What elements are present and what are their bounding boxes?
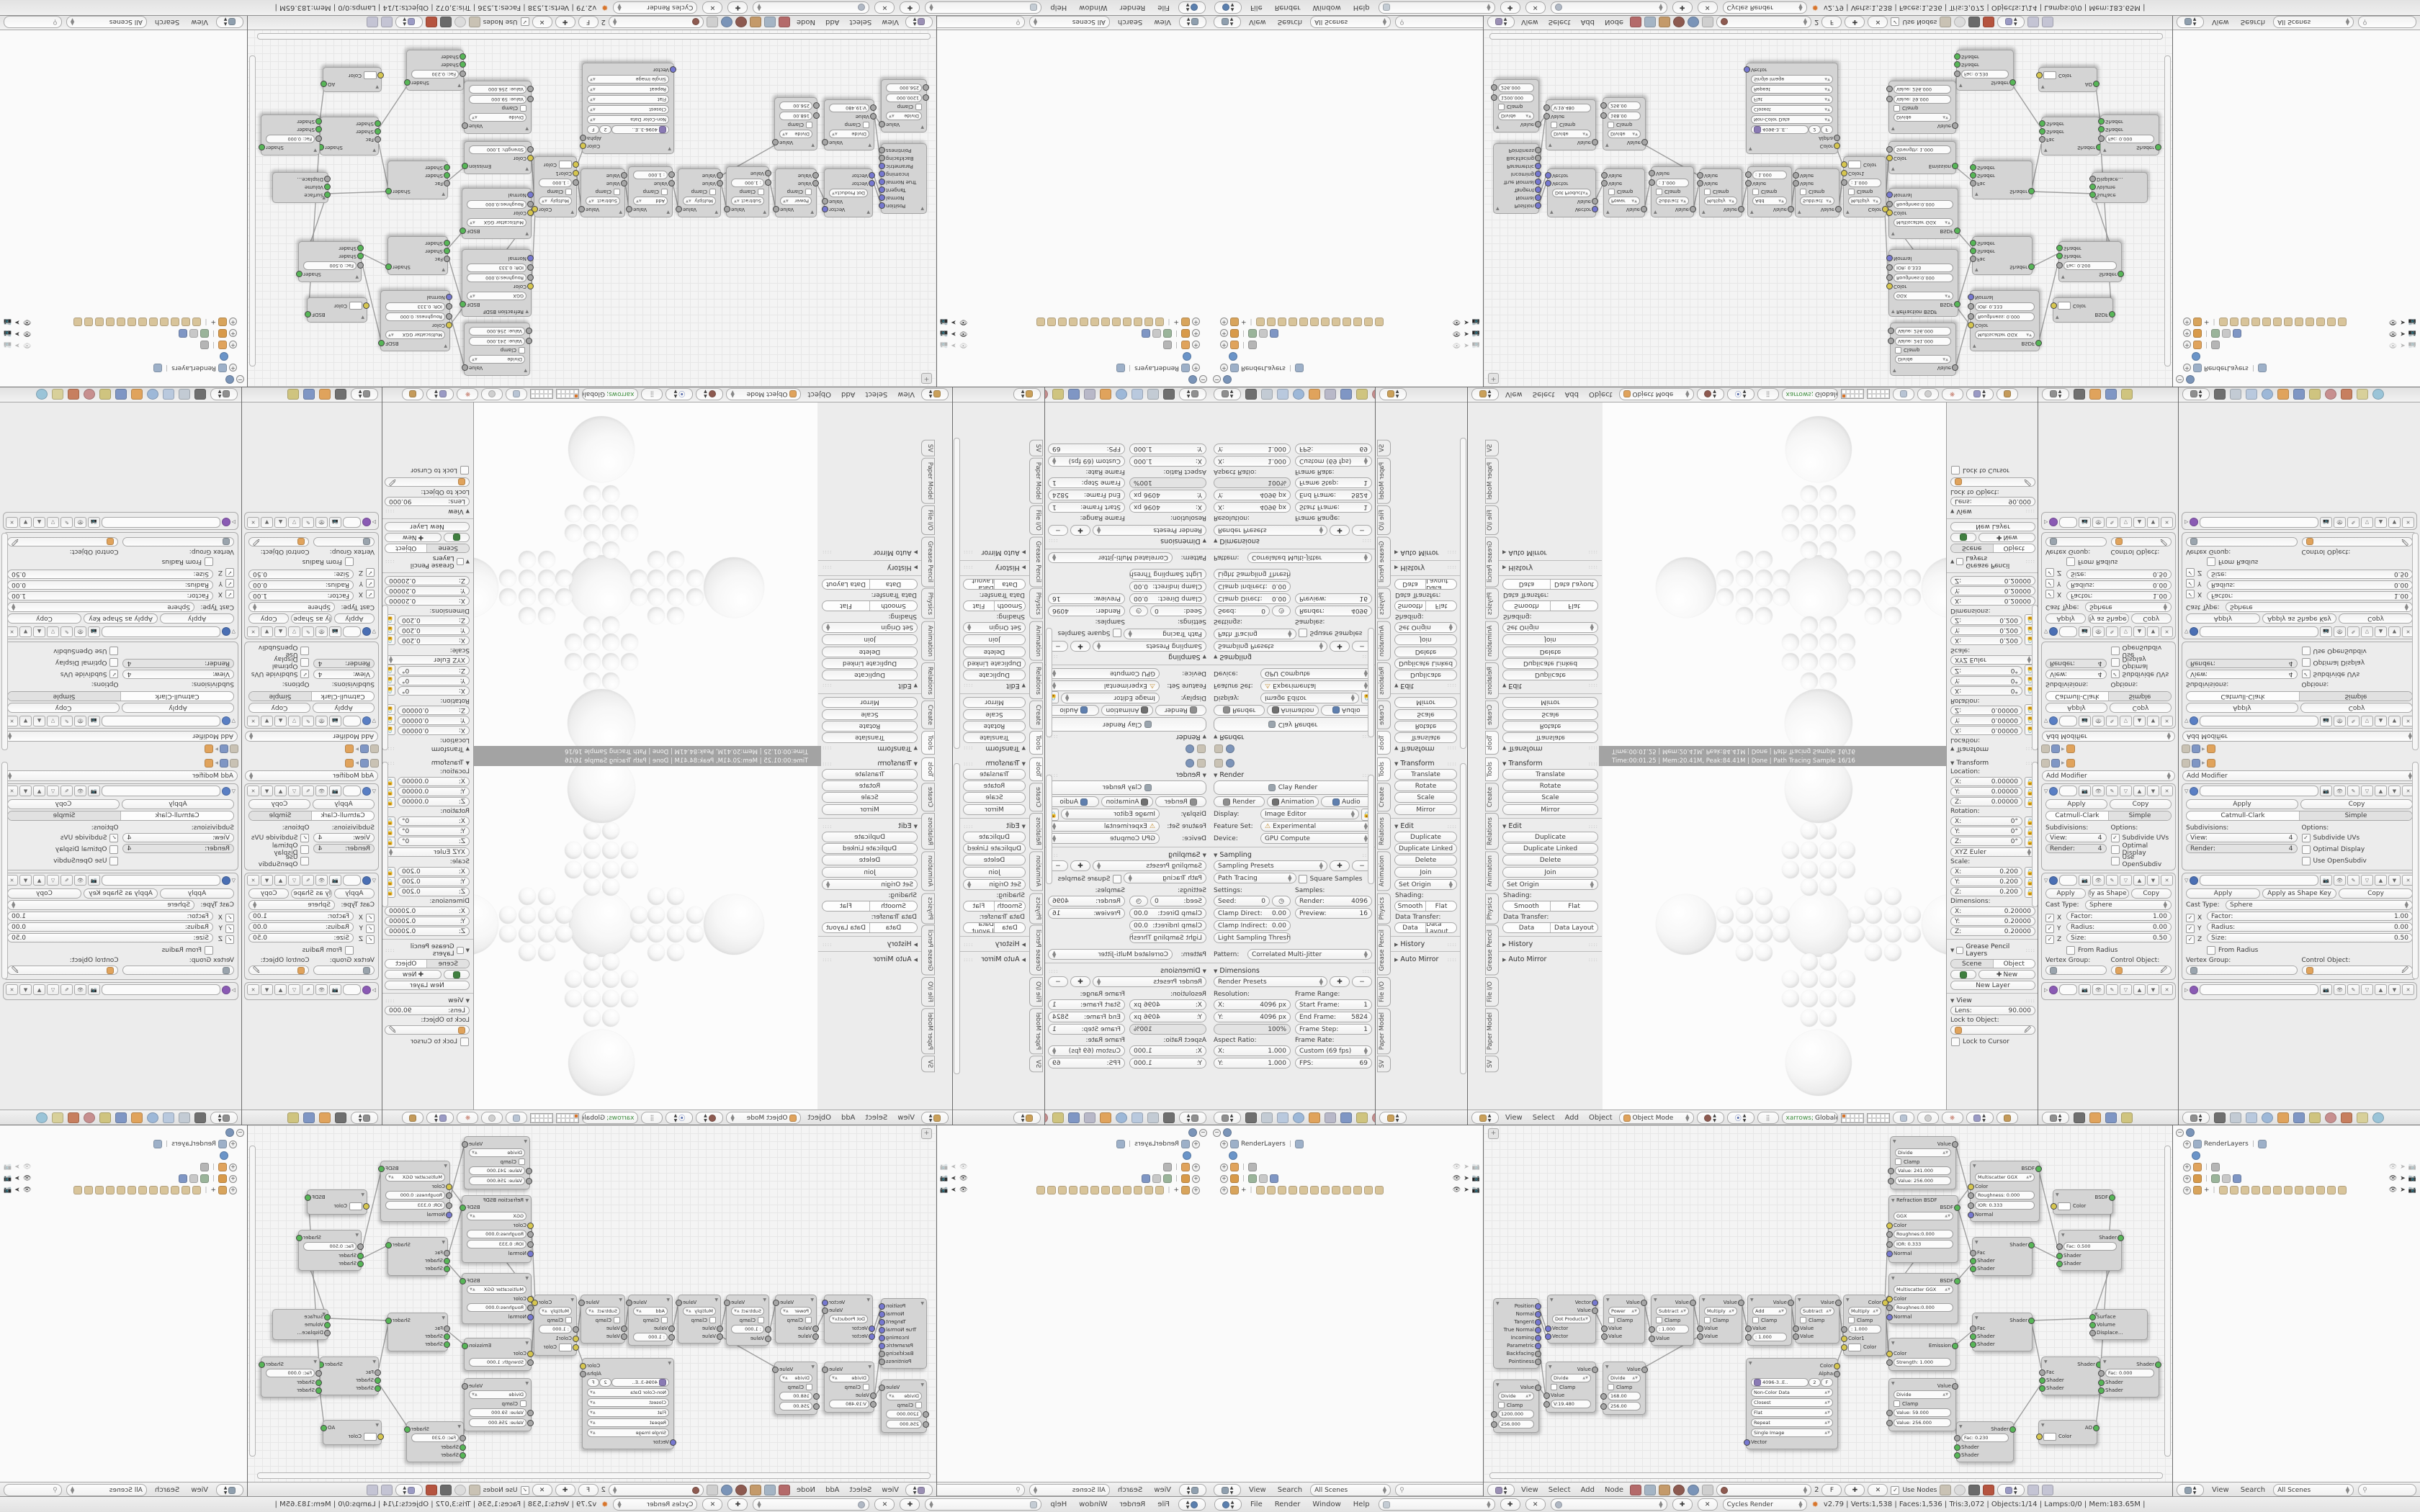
outliner-row-mesh[interactable]: +|👁➤📷 xyxy=(2183,339,2419,351)
toolshelf-tab-file-i-o[interactable]: File I/O xyxy=(1377,977,1391,1007)
subsurf-view-field[interactable]: View:4 xyxy=(123,670,235,679)
move-up-button[interactable]: ▲ xyxy=(33,517,45,528)
tab-modifiers-icon[interactable] xyxy=(1340,1112,1352,1123)
dim-x-field[interactable]: X:0.20000 xyxy=(1950,596,2035,606)
factor-field[interactable]: Factor:1.00 xyxy=(7,912,213,921)
gp-new-button[interactable]: ✚New xyxy=(385,533,442,542)
delete-modifier-button[interactable]: ✕ xyxy=(2161,875,2173,886)
proportional-edit-toggle[interactable] xyxy=(1917,1112,1939,1124)
toolshelf-tab-grease-pencil[interactable]: Grease Pencil xyxy=(1377,925,1391,976)
render-camera-icon[interactable]: 📷 xyxy=(1472,1175,1480,1182)
node-mix-shader-05[interactable]: ▼ShaderFac: 0.500ShaderShader xyxy=(298,241,362,282)
outliner-row-armature[interactable]: ++|👁➤📷 xyxy=(938,316,1200,328)
start-frame-field[interactable]: Start Frame:1 xyxy=(1048,502,1125,513)
from-radius-checkbox[interactable]: From Radius xyxy=(162,557,213,567)
tab-object-icon[interactable] xyxy=(131,389,143,400)
collapse-icon[interactable]: ▽ xyxy=(2184,788,2188,794)
menu-render[interactable]: Render xyxy=(1271,4,1304,12)
visibility-eye-icon[interactable]: 👁 xyxy=(2389,1187,2397,1194)
apply-shape-key-button[interactable]: Apply as Shape Key xyxy=(2262,888,2336,899)
tab-scene-icon[interactable] xyxy=(163,389,174,400)
duplicate-linked-button[interactable]: Duplicate Linked xyxy=(1394,658,1457,669)
shader-type-lineart-icon[interactable] xyxy=(707,17,718,27)
parent-node-icon[interactable] xyxy=(454,17,466,27)
viewport-visibility-toggle[interactable]: 👁 xyxy=(315,786,328,796)
tab-modifiers-icon[interactable] xyxy=(2105,389,2117,400)
integrator-dropdown[interactable]: Path Tracing▲▼ xyxy=(1214,629,1296,639)
menu-render[interactable]: Render xyxy=(1116,1500,1149,1508)
tab-render-icon[interactable] xyxy=(194,1112,206,1123)
add-layout-button[interactable]: ✚ xyxy=(900,1498,920,1511)
collapse-icon[interactable]: ▽ xyxy=(2184,719,2188,724)
vertex-group-field[interactable] xyxy=(123,966,235,975)
outliner-row-mesh[interactable]: +|👁➤📷 xyxy=(1,339,237,351)
toolshelf-tab-tools[interactable]: Tools xyxy=(1029,757,1043,781)
menu-node[interactable]: Node xyxy=(793,1486,819,1494)
lock-to-cursor-checkbox[interactable]: Lock to Cursor xyxy=(385,1036,469,1047)
cast-type-dropdown[interactable]: Sphere▲▼ xyxy=(2226,900,2413,910)
shade-flat-button[interactable]: Flat xyxy=(964,901,994,911)
node-math-subtract-2[interactable]: ▼ValueSubtract▲▼ClampValueValue xyxy=(1795,1295,1839,1344)
snap-element-dropdown[interactable]: ▲▼ xyxy=(395,16,423,28)
cage-toggle[interactable]: ▽ xyxy=(2361,517,2373,528)
rot-z-field[interactable]: Z:0° xyxy=(398,666,470,675)
node-math-divide-241[interactable]: ▼ValueDivide▲▼ClampValue: 241.000Value: … xyxy=(464,323,530,376)
duplicate-button[interactable]: Duplicate xyxy=(1502,670,1598,680)
tab-render-icon[interactable] xyxy=(2074,389,2085,400)
layers-grid-1[interactable] xyxy=(1841,390,1864,400)
node-math-subtract-1[interactable]: ▼ValueSubtract▲▼Clamp: 1.000Value xyxy=(1651,166,1694,217)
factor-field[interactable]: Factor:1.00 xyxy=(248,912,354,921)
npanel-scrollbar[interactable] xyxy=(382,762,388,907)
resolution-x-field[interactable]: X:4096 px xyxy=(1214,999,1291,1010)
radius-field[interactable]: Radius:0.00 xyxy=(7,922,213,932)
material-users-count[interactable]: 2 xyxy=(601,1486,606,1494)
fake-user-button[interactable]: F xyxy=(1821,16,1842,28)
feature-set-dropdown[interactable]: ⚠Experimental▲▼ xyxy=(1260,680,1372,691)
use-opensubdiv-checkbox[interactable]: Use OpenSubdiv xyxy=(248,646,310,657)
viewport-visibility-toggle[interactable]: 👁 xyxy=(74,716,86,726)
menu-view[interactable]: View xyxy=(894,390,918,398)
viewport-visibility-toggle[interactable]: 👁 xyxy=(2092,716,2105,726)
pin-icon[interactable] xyxy=(469,1485,480,1495)
node-mix-rgb-multiply[interactable]: ▼ColorMultiply▲▼Clamp: 1.000Color1Color xyxy=(1843,1295,1886,1356)
menu-select[interactable]: Select xyxy=(1545,18,1574,26)
editor-type-selector[interactable]: ▲▼ xyxy=(216,1484,243,1496)
editmode-toggle[interactable]: ✎ xyxy=(2106,716,2118,726)
node-glass-bsdf[interactable]: ▼BSDFMultiscatter GGX▲▼ColorRoughness: 0… xyxy=(1970,290,2040,351)
node-image-texture[interactable]: ▼ColorAlpha4096-3..E..2FNon-Color Data▲▼… xyxy=(1746,63,1838,154)
cast-x-checkbox[interactable]: ✓X xyxy=(2186,589,2205,600)
render-visibility-toggle[interactable]: 📷 xyxy=(2320,517,2332,528)
toolshelf-tab-relations[interactable]: Relations xyxy=(1029,813,1043,850)
panel-header-history[interactable]: ▶History:::: xyxy=(963,940,1026,948)
menu-view[interactable]: View xyxy=(878,18,902,26)
seed-field[interactable]: Seed:0 xyxy=(1150,896,1206,906)
viewport-visibility-toggle[interactable]: 👁 xyxy=(315,875,328,886)
viewport-visibility-toggle[interactable]: 👁 xyxy=(2334,626,2346,637)
shader-type-lineart-icon[interactable] xyxy=(1702,1485,1713,1495)
set-origin-dropdown[interactable]: Set Origin▲▼ xyxy=(1394,879,1457,890)
menu-add[interactable]: Add xyxy=(838,1114,859,1122)
tree-type-shader-icon[interactable] xyxy=(779,17,790,27)
end-frame-field[interactable]: End Frame:5824 xyxy=(1048,490,1125,500)
editmode-toggle[interactable]: ✎ xyxy=(60,984,73,995)
snap-magnet-icon[interactable] xyxy=(426,1485,437,1495)
selectability-cursor-icon[interactable]: ➤ xyxy=(951,1187,956,1194)
duplicate-button[interactable]: Duplicate xyxy=(963,832,1026,842)
rotate-button[interactable]: Rotate xyxy=(1502,721,1598,732)
copy-button[interactable]: Copy xyxy=(2339,613,2413,624)
join-button[interactable]: Join xyxy=(963,634,1026,645)
render-camera-icon[interactable]: 📷 xyxy=(4,318,12,325)
toolshelf-tab-paper-model[interactable]: Paper Model xyxy=(1029,1008,1043,1054)
tab-constraints-icon[interactable] xyxy=(1084,389,1095,400)
subsurf-render-field[interactable]: Render:4 xyxy=(314,659,375,668)
tab-modifiers-icon[interactable] xyxy=(1068,1112,1080,1123)
menu-add[interactable]: Add xyxy=(838,390,859,398)
duplicate-linked-button[interactable]: Duplicate Linked xyxy=(1502,658,1598,669)
simple-button[interactable]: Simple xyxy=(2300,692,2412,701)
material-users-count[interactable]: 2 xyxy=(1814,18,1819,26)
layers-grid-1[interactable] xyxy=(556,1113,579,1123)
snap-element-dropdown[interactable]: ▲▼ xyxy=(395,1484,423,1496)
move-up-button[interactable]: ▲ xyxy=(2133,716,2146,726)
vertex-group-field[interactable] xyxy=(2045,537,2107,546)
render-button[interactable]: Render xyxy=(1214,796,1265,807)
add-modifier-dropdown[interactable]: Add Modifier▲▼ xyxy=(245,731,378,742)
frame-step-field[interactable]: Frame Step:1 xyxy=(1048,477,1125,488)
outliner-row-armature[interactable]: ++|👁➤📷 xyxy=(938,1184,1200,1196)
tab-data-icon[interactable] xyxy=(2121,389,2133,400)
toolshelf-tab-physics[interactable]: Physics xyxy=(1485,893,1499,924)
npanel-header-view[interactable]: ▼View:::: xyxy=(385,508,470,515)
node-material-output[interactable]: ▼SurfaceVolumeDisplace... xyxy=(272,1309,328,1340)
parent-node-icon[interactable] xyxy=(454,1485,466,1495)
render-camera-icon[interactable]: 📷 xyxy=(4,1164,12,1171)
parent-node-icon[interactable] xyxy=(1954,1485,1966,1495)
outliner-row-lamp[interactable]: +|👁➤📷 xyxy=(2183,328,2419,339)
dim-preset-add-button[interactable]: ✚ xyxy=(1330,525,1350,536)
move-up-button[interactable]: ▲ xyxy=(274,875,287,886)
rotate-button[interactable]: Rotate xyxy=(1394,721,1457,732)
delete-modifier-button[interactable]: ✕ xyxy=(247,626,259,637)
editor-type-selector[interactable]: ▲▼ xyxy=(210,388,238,400)
outliner-row-renderlayers[interactable]: +RenderLayers| xyxy=(2183,1138,2419,1150)
framerate-dropdown[interactable]: Custom (69 fps)▲▼ xyxy=(1295,1045,1372,1056)
viewport-visibility-toggle[interactable]: 👁 xyxy=(315,984,328,995)
outliner-row-scene[interactable]: − xyxy=(938,374,1207,385)
control-object-field[interactable]: 🖉 xyxy=(7,537,119,546)
cast-x-checkbox[interactable]: ✓X xyxy=(215,589,234,600)
render-camera-icon[interactable]: 📷 xyxy=(1472,1187,1480,1194)
viewport-visibility-toggle[interactable]: 👁 xyxy=(315,716,328,726)
snap-magnet-icon[interactable] xyxy=(1983,1485,1994,1495)
apply-button[interactable]: Apply xyxy=(2045,888,2086,899)
toolshelf-tab-tools[interactable]: Tools xyxy=(1377,731,1391,755)
collapse-icon[interactable]: ▽ xyxy=(372,788,376,794)
move-up-button[interactable]: ▲ xyxy=(2375,786,2387,796)
outliner-row-mesh[interactable]: +|👁➤📷 xyxy=(2183,1161,2419,1173)
gp-new-layer-button[interactable]: New Layer xyxy=(1950,522,2035,531)
tab-physics-icon[interactable] xyxy=(36,1112,48,1123)
panel-header-edit[interactable]: ▼Edit:::: xyxy=(963,682,1026,690)
toolshelf-tab-sv[interactable]: SV xyxy=(1485,440,1499,456)
set-origin-dropdown[interactable]: Set Origin▲▼ xyxy=(1394,622,1457,633)
node-image-texture[interactable]: ▼ColorAlpha4096-3..E..2FNon-Color Data▲▼… xyxy=(582,1358,674,1449)
toolshelf-tab-grease-pencil[interactable]: Grease Pencil xyxy=(1485,536,1499,587)
delete-modifier-button[interactable]: ✕ xyxy=(2161,786,2173,796)
node-geometry[interactable]: ▼PositionNormalTangentTrue NormalIncomin… xyxy=(881,143,927,214)
node-vscrollbar[interactable] xyxy=(2164,55,2171,366)
toolshelf-tab-sv[interactable]: SV xyxy=(1029,1056,1043,1072)
tab-material-icon[interactable] xyxy=(2325,1112,2336,1123)
cage-toggle[interactable]: ▽ xyxy=(2361,984,2373,995)
scale-y-field[interactable]: Y:0.200 xyxy=(1950,626,2022,635)
move-up-button[interactable]: ▲ xyxy=(33,875,45,886)
subsurf-view-field[interactable]: View:4 xyxy=(314,833,375,842)
panel-header-render[interactable]: ▼Render:::: xyxy=(1048,733,1206,741)
menu-search[interactable]: Search xyxy=(1274,18,1306,26)
collapse-icon[interactable]: ▽ xyxy=(372,629,376,635)
shader-type-object-icon[interactable] xyxy=(735,1485,747,1495)
selectability-cursor-icon[interactable]: ➤ xyxy=(951,1164,956,1171)
panel-header-transform[interactable]: ▼Transform:::: xyxy=(822,744,918,752)
seed-field[interactable]: Seed:0 xyxy=(1150,606,1206,616)
data-layout-button[interactable]: Data Layout xyxy=(1551,923,1597,932)
layers-grid-1[interactable] xyxy=(556,390,579,400)
loc-z-field[interactable]: Z:0.00000 xyxy=(398,706,470,715)
cage-toggle[interactable]: ▽ xyxy=(2120,716,2132,726)
editmode-toggle[interactable]: ✎ xyxy=(302,626,314,637)
mirror-button[interactable]: Mirror xyxy=(963,804,1026,815)
shade-smooth-button[interactable]: Smooth xyxy=(1395,601,1426,611)
panel-header-edit[interactable]: ▼Edit:::: xyxy=(1502,822,1598,830)
loc-y-field[interactable]: Y:0.00000 xyxy=(398,787,470,796)
loc-x-field[interactable]: X:0.00000 xyxy=(1950,726,2022,735)
move-up-button[interactable]: ▲ xyxy=(33,626,45,637)
move-down-button[interactable]: ▼ xyxy=(2147,984,2159,995)
menu-view[interactable]: View xyxy=(1518,1486,1542,1494)
scale-x-field[interactable]: X:0.200 xyxy=(1950,867,2022,876)
from-radius-checkbox[interactable]: From Radius xyxy=(162,945,213,955)
rot-y-field[interactable]: Y:0° xyxy=(1950,676,2022,685)
toolshelf-tab-file-i-o[interactable]: File I/O xyxy=(1485,977,1499,1007)
cage-toggle[interactable]: ▽ xyxy=(47,875,59,886)
render-animation-button[interactable]: Animation xyxy=(1101,705,1152,716)
render-audio-button[interactable]: Audio xyxy=(1048,796,1099,807)
node-math-divide-59[interactable]: ▼ValueDivide▲▼ClampValue: 59.000Value: 2… xyxy=(464,1378,532,1431)
factor-field[interactable]: Factor:1.00 xyxy=(248,591,354,600)
copy-button[interactable]: Copy xyxy=(248,703,310,713)
copy-button[interactable]: Copy xyxy=(2110,799,2172,809)
render-visibility-toggle[interactable]: 📷 xyxy=(2320,984,2332,995)
move-up-button[interactable]: ▲ xyxy=(33,716,45,726)
outliner-row-world[interactable] xyxy=(1229,1150,1482,1161)
move-down-button[interactable]: ▼ xyxy=(2147,716,2159,726)
delete-modifier-button[interactable]: ✕ xyxy=(247,984,259,995)
from-radius-checkbox[interactable]: From Radius xyxy=(2066,557,2117,567)
panel-header-edit[interactable]: ▼Edit:::: xyxy=(1502,682,1598,690)
copy-button[interactable]: Copy xyxy=(7,799,120,809)
render-presets-dropdown[interactable]: Render Presets▲▼ xyxy=(1093,976,1206,987)
editmode-toggle[interactable]: ✎ xyxy=(2106,626,2118,637)
toolshelf-tab-paper-model[interactable]: Paper Model xyxy=(921,1008,935,1054)
cage-toggle[interactable]: ▽ xyxy=(288,626,300,637)
modifier-name-field[interactable] xyxy=(2200,984,2318,995)
panel-header-dimensions[interactable]: ▼Dimensions:::: xyxy=(1048,537,1206,545)
editor-type-selector[interactable]: ▲▼ xyxy=(210,1112,238,1124)
toolshelf-tab-tools[interactable]: Tools xyxy=(921,757,935,781)
render-samples-field[interactable]: Render:4096 xyxy=(1295,896,1372,906)
duplicate-linked-button[interactable]: Duplicate Linked xyxy=(963,658,1026,669)
outliner-search-field[interactable]: ⚲ xyxy=(936,1484,1025,1496)
radius-field[interactable]: Radius:0.00 xyxy=(7,580,213,590)
visibility-eye-icon[interactable]: 👁 xyxy=(2389,330,2397,337)
cage-toggle[interactable]: ▽ xyxy=(2120,984,2132,995)
simple-button[interactable]: Simple xyxy=(8,811,120,820)
snap-magnet-toggle[interactable]: ⎈ xyxy=(457,388,478,400)
panel-header-dimensions[interactable]: ▼Dimensions:::: xyxy=(1214,967,1372,975)
shader-type-world-icon[interactable] xyxy=(1688,1485,1699,1495)
orientation-dropdown[interactable]: xarrows;Global▲▼ xyxy=(1782,388,1838,400)
snap-element-dropdown[interactable]: ▲▼ xyxy=(426,1112,454,1124)
render-audio-button[interactable]: Audio xyxy=(1321,796,1372,807)
tab-object-icon[interactable] xyxy=(319,389,331,400)
radius-field[interactable]: Radius:0.00 xyxy=(2066,922,2172,932)
cast-y-checkbox[interactable]: ✓Y xyxy=(2186,923,2205,934)
simple-button[interactable]: Simple xyxy=(2109,811,2171,820)
shade-smooth-button[interactable]: Smooth xyxy=(869,601,917,611)
data-layout-button[interactable]: Data Layout xyxy=(964,580,994,589)
node-dot-product[interactable]: ▼VectorValueDot Product▲▼VectorVector xyxy=(1547,168,1596,217)
outliner-row-lamp[interactable]: +|👁➤📷 xyxy=(1,1173,237,1184)
rotate-button[interactable]: Rotate xyxy=(963,721,1026,732)
resolution-x-field[interactable]: X:4096 px xyxy=(1129,502,1206,513)
collapse-icon[interactable]: ▽ xyxy=(232,788,236,794)
node-math-divide-1200[interactable]: ▼ValueDivide▲▼Clamp1200.000256.000 xyxy=(1493,1380,1539,1433)
framerate-dropdown[interactable]: Custom (69 fps)▲▼ xyxy=(1048,456,1125,467)
cage-toggle[interactable]: ▽ xyxy=(2361,786,2373,796)
tree-type-compositing-icon[interactable] xyxy=(764,17,776,27)
delete-modifier-button[interactable]: ✕ xyxy=(2161,984,2173,995)
from-radius-checkbox[interactable]: From Radius xyxy=(302,557,354,567)
dim-y-field[interactable]: Y:0.20000 xyxy=(385,917,470,926)
outliner-row-armature[interactable]: ++|👁➤📷 xyxy=(1,1184,237,1196)
render-camera-icon[interactable]: 📷 xyxy=(1472,330,1480,337)
display-mode-dropdown[interactable]: All Scenes▲▼ xyxy=(1310,16,1391,28)
light-sampling-threshold-field[interactable]: Light Sampling Thresho:0.00 xyxy=(1129,569,1206,580)
outliner-search-field[interactable]: ⚲ xyxy=(2358,16,2416,28)
optimal-display-checkbox[interactable]: Optimal Display xyxy=(2302,657,2414,668)
tab-object-icon[interactable] xyxy=(131,1112,143,1123)
node-mix-shader-2[interactable]: ▼ShaderFacShaderShader xyxy=(1972,161,2033,199)
toolshelf-tab-grease-pencil[interactable]: Grease Pencil xyxy=(921,536,935,587)
render-samples-field[interactable]: Render:4096 xyxy=(1295,606,1372,616)
cage-toggle[interactable]: ▽ xyxy=(2361,626,2373,637)
end-frame-field[interactable]: End Frame:5824 xyxy=(1048,1012,1125,1022)
panel-header-sampling[interactable]: ▼Sampling:::: xyxy=(1214,851,1372,859)
control-object-field[interactable]: 🖉 xyxy=(2302,966,2414,975)
menu-window[interactable]: Window xyxy=(1309,4,1344,12)
pattern-dropdown[interactable]: Correlated Multi-Jitter▲▼ xyxy=(1048,949,1173,960)
selectability-cursor-icon[interactable]: ➤ xyxy=(951,341,956,348)
editor-type-selector[interactable]: ▲▼ xyxy=(1487,16,1515,28)
data-layout-button[interactable]: Data Layout xyxy=(1426,923,1456,932)
scene-selector[interactable]: ▲▼ xyxy=(753,1498,869,1511)
node-vscrollbar[interactable] xyxy=(249,55,256,366)
outliner-search-field[interactable]: ⚲ xyxy=(4,16,62,28)
render-visibility-toggle[interactable]: 📷 xyxy=(329,517,341,528)
manipulator-toggle[interactable]: ⣿ xyxy=(1757,1112,1779,1124)
npanel-header-view[interactable]: ▼View:::: xyxy=(1950,508,2035,515)
panel-header-edit[interactable]: ▼Edit:::: xyxy=(822,682,918,690)
rotation-mode-dropdown[interactable]: XYZ Euler▲▼ xyxy=(1950,655,2035,665)
toolshelf-tab-tools[interactable]: Tools xyxy=(1485,731,1499,755)
node-dot-product[interactable]: ▼VectorValueDot Product▲▼VectorVector xyxy=(824,168,873,217)
shade-flat-button[interactable]: Flat xyxy=(823,901,869,911)
delete-modifier-button[interactable]: ✕ xyxy=(2402,517,2414,528)
editor-type-selector[interactable]: ▲▼ xyxy=(1214,388,1241,400)
dim-preset-remove-button[interactable]: − xyxy=(1352,525,1372,536)
node-mix-shader-0[interactable]: ▼ShaderFac: 0.000ShaderShader xyxy=(2100,1356,2159,1398)
tab-data-icon[interactable] xyxy=(1052,389,1064,400)
menu-search[interactable]: Search xyxy=(2237,1486,2269,1494)
rot-x-field[interactable]: X:0° xyxy=(398,686,470,696)
move-down-button[interactable]: ▼ xyxy=(2388,786,2401,796)
toolshelf-tab-file-i-o[interactable]: File I/O xyxy=(1485,505,1499,535)
node-bsdf-color[interactable]: ▼BSDFColor xyxy=(307,1189,367,1215)
join-button[interactable]: Join xyxy=(822,634,918,645)
dim-preset-remove-button[interactable]: − xyxy=(1048,525,1068,536)
tab-scene-icon[interactable] xyxy=(163,1112,174,1123)
tree-type-compositing-icon[interactable] xyxy=(1644,17,1656,27)
node-refraction-bsdf[interactable]: ▼Refraction BSDFBSDFGGX▲▼ColorRoughnes:0… xyxy=(462,249,532,317)
scale-z-field[interactable]: Z:0.200 xyxy=(1950,887,2022,896)
vertex-group-field[interactable] xyxy=(314,966,375,975)
fps-field[interactable]: FPS:69 xyxy=(1048,444,1125,454)
editor-type-selector[interactable]: ▲▼ xyxy=(905,16,933,28)
mirror-button[interactable]: Mirror xyxy=(1502,804,1598,815)
menu-window[interactable]: Window xyxy=(1075,4,1111,12)
cast-z-checkbox[interactable]: ✓Z xyxy=(215,567,234,578)
lock-to-cursor-checkbox[interactable]: Lock to Cursor xyxy=(1951,1036,2035,1047)
simple-button[interactable]: Simple xyxy=(249,692,311,701)
panel-header-auto-mirror[interactable]: ▶Auto Mirror:::: xyxy=(963,549,1026,557)
dim-y-field[interactable]: Y:0.20000 xyxy=(1950,917,2035,926)
sampling-presets-dropdown[interactable]: Sampling Presets▲▼ xyxy=(1093,641,1206,652)
subdivide-uvs-checkbox[interactable]: ✓Subdivide UVs xyxy=(2111,669,2172,680)
outliner-row-scene[interactable]: − xyxy=(938,1127,1207,1138)
tab-object-icon[interactable] xyxy=(1100,389,1111,400)
delete-button[interactable]: Delete xyxy=(963,855,1026,865)
apply-shape-key-button[interactable]: Apply as Shape Key xyxy=(84,888,158,899)
toolshelf-tab-paper-model[interactable]: Paper Model xyxy=(921,458,935,504)
collapse-icon[interactable]: ▷ xyxy=(232,987,236,993)
simple-button[interactable]: Simple xyxy=(8,692,120,701)
tab-render-icon[interactable] xyxy=(1245,389,1257,400)
gp-new-button[interactable]: ✚New xyxy=(385,970,442,979)
new-material-button[interactable]: ✚ xyxy=(555,16,575,28)
tab-data-icon[interactable] xyxy=(1052,1112,1064,1123)
node-mix-shader-0[interactable]: ▼ShaderFac: 0.000ShaderShader xyxy=(2100,114,2159,156)
panel-header-transform[interactable]: ▼Transform:::: xyxy=(963,744,1026,752)
move-up-button[interactable]: ▲ xyxy=(274,984,287,995)
display-dropdown[interactable]: Image Editor▲▼ xyxy=(1061,693,1160,703)
tab-texture-icon[interactable] xyxy=(68,389,79,400)
scale-button[interactable]: Scale xyxy=(1394,709,1457,720)
tab-material-icon[interactable] xyxy=(2325,389,2336,400)
